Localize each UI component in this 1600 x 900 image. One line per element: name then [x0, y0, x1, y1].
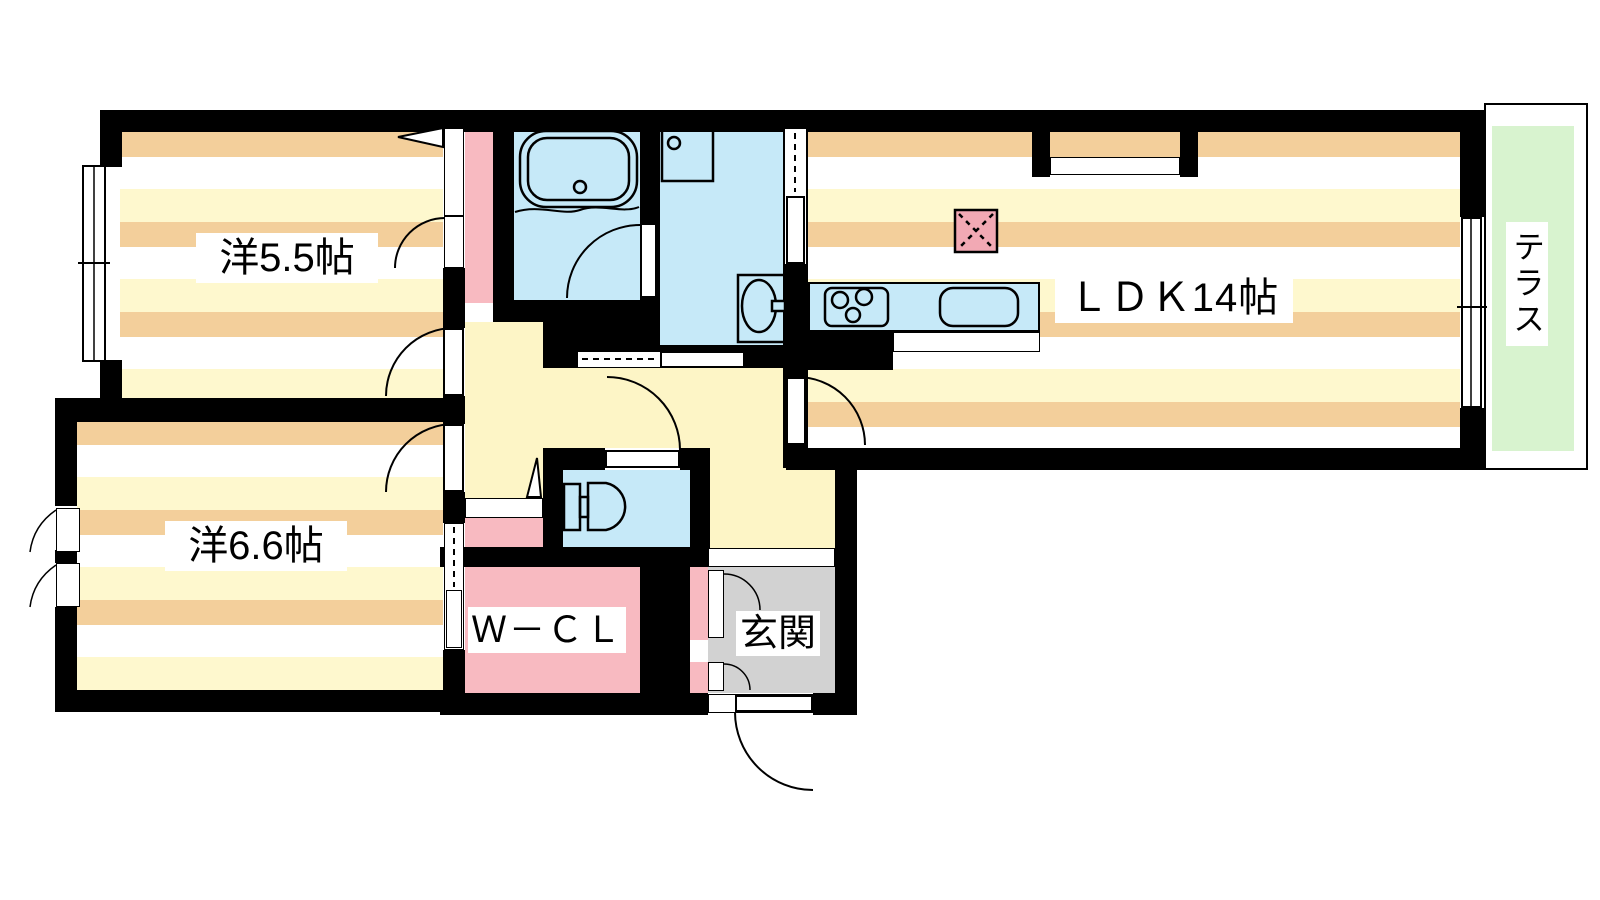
window-terrace-slider — [1461, 217, 1482, 408]
wall — [835, 448, 857, 715]
wall — [443, 396, 465, 424]
door-ldk — [786, 377, 806, 445]
wall — [813, 693, 857, 715]
wall — [806, 332, 893, 370]
wcl-upper-floor — [465, 518, 543, 547]
wall — [55, 690, 465, 712]
room-label-entrance: 玄関 — [736, 611, 820, 656]
hallway-floor — [543, 368, 783, 448]
kitchen-counter — [808, 282, 1040, 332]
hallway-floor — [465, 322, 543, 498]
toilet-floor — [563, 470, 690, 547]
closet-door-track — [444, 128, 464, 216]
wall — [443, 492, 465, 523]
window-arc — [30, 510, 56, 552]
closet-strip — [465, 128, 493, 303]
window-bedroom2 — [56, 508, 80, 552]
floor-plan: 洋5.5帖 洋6.6帖 ＬＤＫ14帖 Ｗ－ＣＬ 玄関 テラス — [0, 0, 1600, 900]
closet-door — [444, 216, 464, 268]
wall — [493, 128, 514, 302]
washroom-floor — [660, 128, 783, 351]
niche-alcove — [1050, 132, 1180, 157]
wall — [1032, 132, 1050, 177]
wall — [543, 470, 563, 547]
room-label-wcl: Ｗ－ＣＬ — [468, 607, 626, 653]
door-arc-front — [735, 712, 813, 790]
door-bedroom2 — [443, 424, 464, 492]
window-bedroom1 — [82, 165, 106, 362]
wall — [543, 448, 605, 470]
door-bedroom1 — [443, 328, 464, 396]
door-toilet — [605, 450, 680, 468]
room-label-ldk: ＬＤＫ14帖 — [1055, 273, 1293, 323]
shoe-cabinet — [690, 662, 708, 693]
wall — [440, 693, 708, 715]
wall — [1460, 408, 1484, 470]
wall — [640, 547, 690, 695]
bathroom-floor — [514, 128, 640, 302]
door-bathroom — [640, 223, 657, 298]
wall — [493, 300, 660, 322]
wall — [55, 398, 77, 506]
shoe-cabinet-door — [708, 570, 724, 638]
wall — [1460, 110, 1484, 217]
room-label-bedroom1: 洋5.5帖 — [196, 233, 378, 283]
kitchen-counter-edge — [893, 332, 1040, 352]
wall — [786, 448, 1484, 470]
wall — [100, 110, 122, 167]
room-label-terrace: テラス — [1506, 222, 1548, 346]
sliding-door-wcl-panel — [446, 590, 462, 648]
front-door — [735, 695, 813, 712]
window-arc — [30, 565, 56, 607]
entrance-step — [708, 548, 835, 567]
window-bedroom2 — [56, 563, 80, 607]
wall — [55, 398, 465, 422]
room-label-bedroom2: 洋6.6帖 — [165, 521, 347, 571]
sliding-door-kitchen-panel — [786, 196, 805, 264]
wall — [1180, 132, 1198, 177]
sliding-door-washroom-panel — [660, 351, 745, 368]
niche-door — [1050, 157, 1180, 175]
wall — [443, 268, 465, 328]
closet-door-hall — [465, 498, 543, 518]
shoe-cabinet-door — [708, 662, 724, 691]
shoe-cabinet — [690, 567, 708, 640]
